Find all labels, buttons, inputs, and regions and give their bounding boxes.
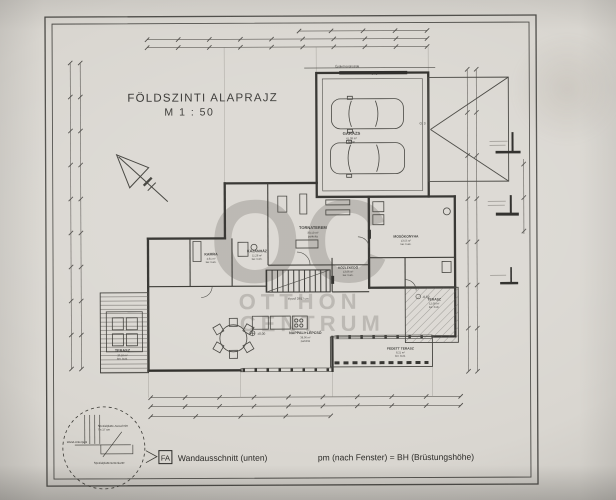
floor-plan-drawing: OC OTTHON CENTRUM FÖLDSZINTI ALAPRAJZ M … [0,0,616,500]
svg-text:MOSÓKONYHA: MOSÓKONYHA [393,234,419,239]
svg-text:FEDETT TERASZ: FEDETT TERASZ [387,347,414,351]
grid-label-g1: G. 1 [371,72,377,76]
svg-text:KÖZLEKEDŐ: KÖZLEKEDŐ [338,265,359,270]
room-label-terasz-right: TERASZ 12,06 m² ker. burk. [427,297,441,308]
svg-text:ker. burk.: ker. burk. [395,354,406,358]
svg-text:TERASZ: TERASZ [427,297,441,301]
svg-text:TORNATEREM: TORNATEREM [299,225,328,230]
title-block: FÖLDSZINTI ALAPRAJZ M 1 : 50 [127,92,278,119]
dining-table [213,318,254,358]
svg-text:parketta: parketta [308,234,319,238]
staircase [266,270,330,292]
floor-plan-photo: OC OTTHON CENTRUM FÖLDSZINTI ALAPRAJZ M … [0,0,616,500]
detail-note-2: 7 x 17 cm [98,427,111,431]
room-label-fedett-terasz: FEDETT TERASZ 8,21 m² ker. burk. [387,347,414,358]
stair-note: lépcső 28/17 cm [288,296,309,300]
svg-text:beton: beton [348,140,355,144]
room-label-nappali: NAPPALI+LÉPCSŐ 38,06 m² parketta [289,330,322,343]
terrace-left [100,293,148,373]
legend: FA Wandausschnitt (unten) pm (nach Fenst… [159,449,474,463]
car-top-view [331,96,403,132]
svg-text:ker. burk.: ker. burk. [117,357,128,361]
level-zero-label: ±0,00 [257,332,265,336]
room-label-mosokonyha: MOSÓKONYHA 13,55 m² ker. burk. [393,234,419,247]
svg-text:GARÁZS: GARÁZS [343,131,361,136]
svg-text:parketta: parketta [301,339,311,343]
svg-text:KAZÁNHÁZ: KAZÁNHÁZ [247,248,268,253]
wall-section-details [487,132,521,283]
car-top-view [331,140,405,177]
detail-inset: Spezialplatte-Ausschnitt 7 x 17 cm Wand-… [63,407,157,489]
grid-label-g3: G. 3 [419,121,425,125]
svg-text:ker. burk.: ker. burk. [252,257,263,261]
legend-fa-symbol: FA [161,454,170,463]
legend-pm-note: pm (nach Fenster) = BH (Brüstungshöhe) [318,452,474,463]
detail-note-4: Spezialplattenunterkante [94,461,125,465]
svg-text:TERASZ: TERASZ [115,349,131,353]
north-arrow-icon [117,155,168,202]
roof-outline [428,77,508,181]
svg-text:ker. burk.: ker. burk. [206,260,217,264]
legend-wall-cut: Wandausschnitt (unten) [178,453,268,463]
svg-text:KAMRA: KAMRA [204,252,218,256]
detail-note-3: Wand-Unterputz [67,440,88,444]
svg-text:ker. burk.: ker. burk. [401,242,412,246]
svg-text:ker. burk.: ker. burk. [343,273,354,277]
svg-text:ker. burk.: ker. burk. [429,305,440,309]
svg-text:NAPPALI+LÉPCSŐ: NAPPALI+LÉPCSŐ [289,330,322,335]
page-title: FÖLDSZINTI ALAPRAJZ [127,92,278,105]
room-label-garazs: GARÁZS 41,09 m² beton [343,131,361,144]
terrace-right [405,287,458,342]
walkway-note: Épület körüli járda [335,63,359,68]
scale-label: M 1 : 50 [164,106,214,118]
